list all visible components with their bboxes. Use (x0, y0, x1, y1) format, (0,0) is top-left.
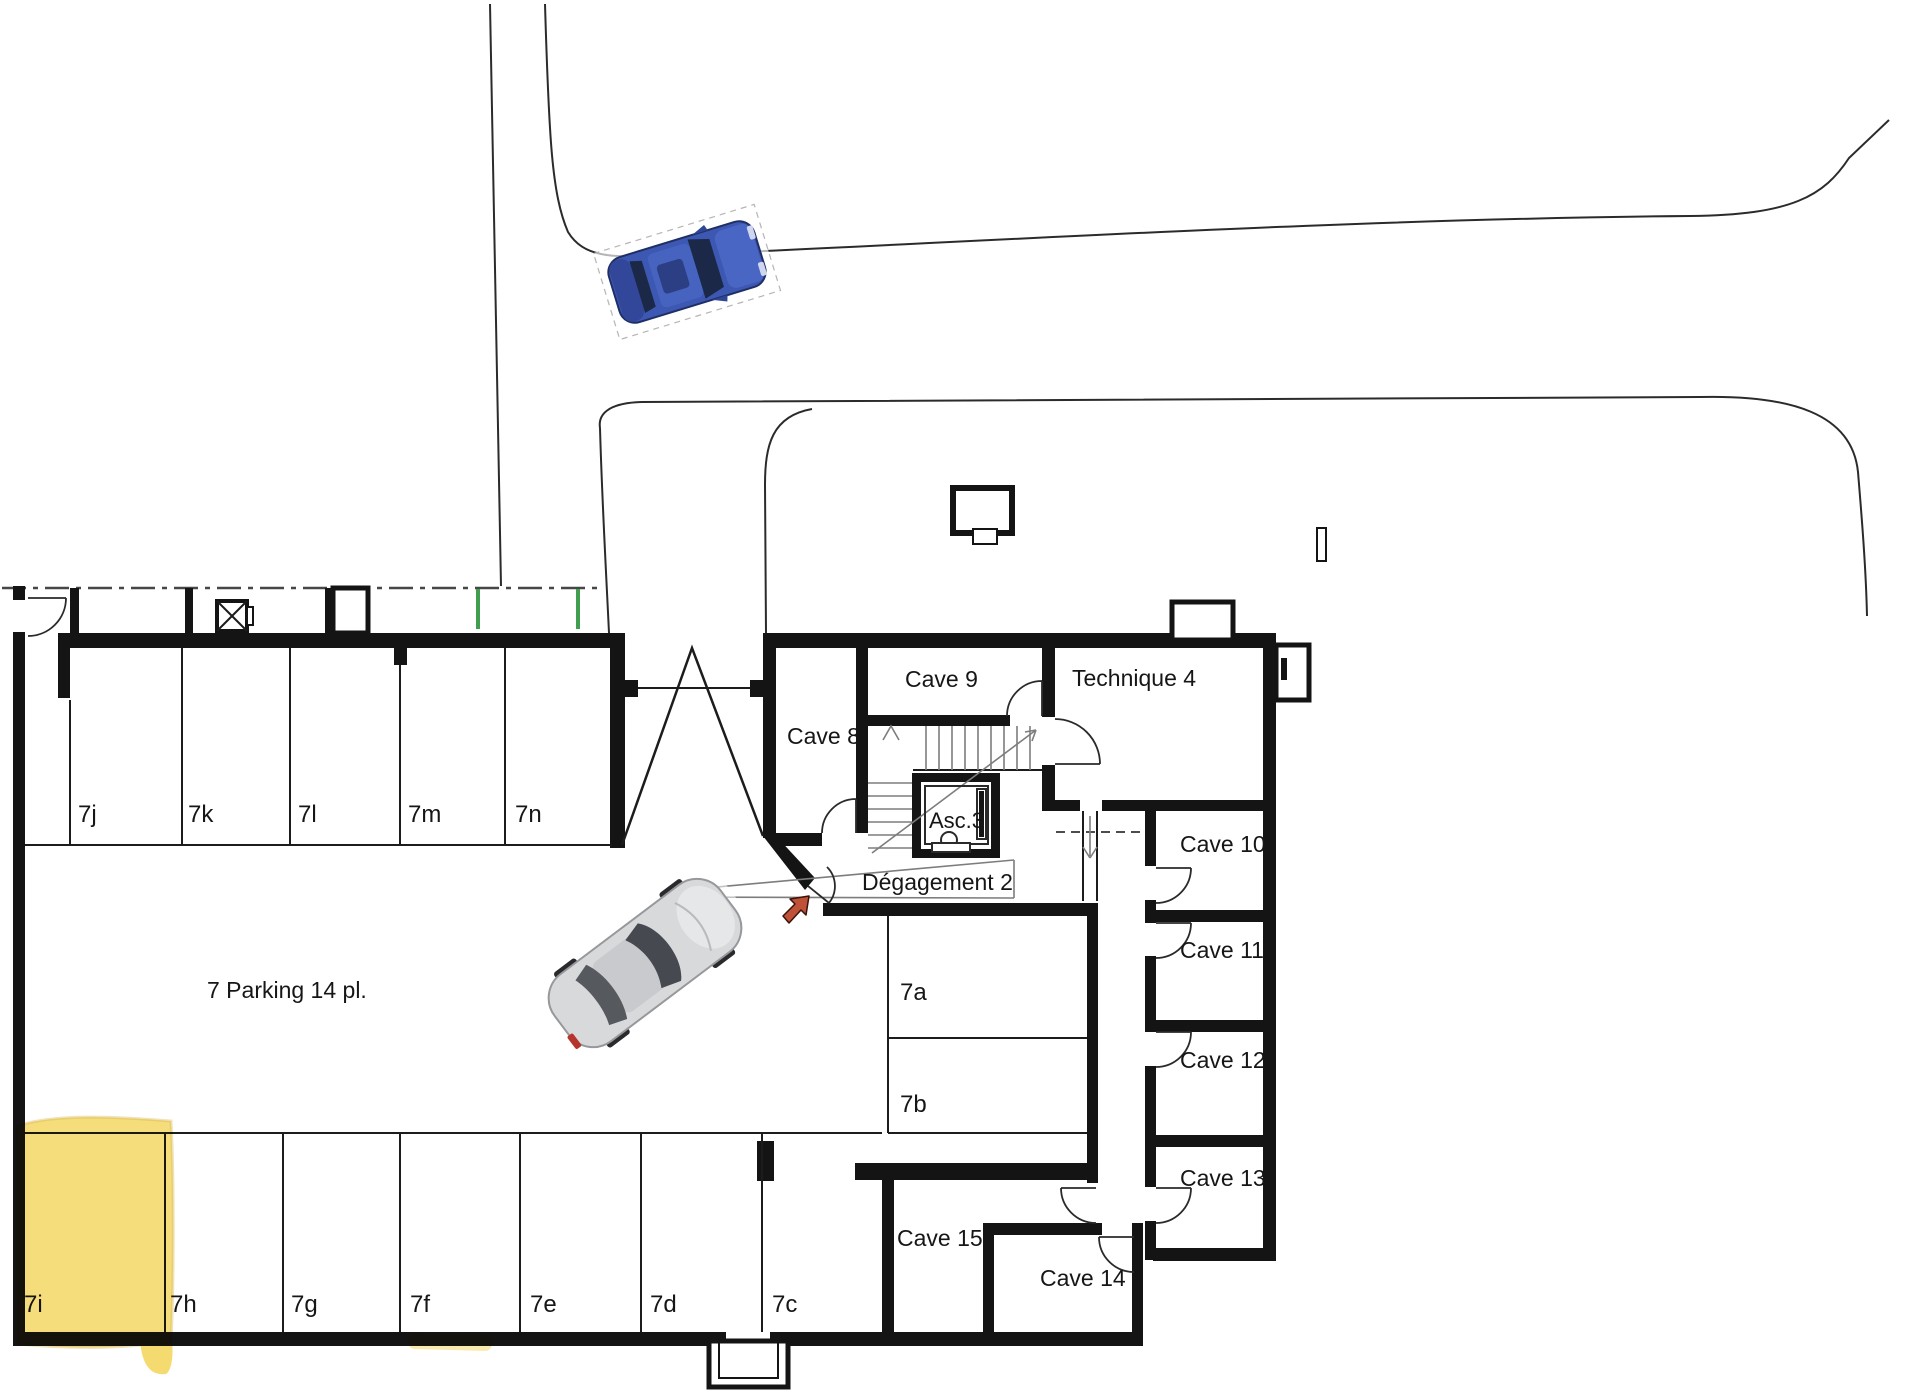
room-label-cave14: Cave 14 (1040, 1265, 1126, 1291)
room-label-technique: Technique 4 (1072, 665, 1196, 691)
light-well (1276, 645, 1309, 700)
room-label-cave8: Cave 8 (787, 723, 860, 749)
room-label-elevator: Asc.3 (929, 808, 984, 833)
room-label-cave15: Cave 15 (897, 1225, 983, 1251)
room-label-cave12: Cave 12 (1180, 1047, 1266, 1073)
wall-niche (1172, 602, 1233, 640)
stall-label-7b: 7b (900, 1091, 927, 1118)
parking-title: 7 Parking 14 pl. (207, 977, 367, 1003)
stall-label-7c: 7c (772, 1291, 797, 1318)
background (0, 0, 1920, 1396)
wall-niche (333, 588, 368, 633)
stall-label-7d: 7d (650, 1291, 677, 1318)
exit-vestibule (709, 1341, 788, 1387)
stall-label-7g: 7g (291, 1291, 318, 1318)
light-well (953, 488, 1012, 533)
stall-label-7e: 7e (530, 1291, 557, 1318)
room-label-cave13: Cave 13 (1180, 1165, 1266, 1191)
room-label-cave10: Cave 10 (1180, 831, 1266, 857)
stall-label-7a: 7a (900, 979, 927, 1006)
stall-label-7n: 7n (515, 801, 542, 828)
room-label-hallway: Dégagement 2 (862, 869, 1013, 895)
stall-label-7k: 7k (188, 801, 214, 828)
room-label-cave11: Cave 11 (1180, 937, 1264, 963)
stall-label-7f: 7f (410, 1291, 430, 1318)
stall-label-7l: 7l (298, 801, 317, 828)
floorplan-drawing: 7 Parking 14 pl. 7j 7k 7l 7m 7n 7i 7h 7g… (0, 0, 1920, 1396)
stall-label-7m: 7m (408, 801, 441, 828)
stall-label-7j: 7j (78, 801, 97, 828)
floorplan-canvas: 7 Parking 14 pl. 7j 7k 7l 7m 7n 7i 7h 7g… (0, 0, 1920, 1396)
room-label-cave9: Cave 9 (905, 666, 978, 692)
